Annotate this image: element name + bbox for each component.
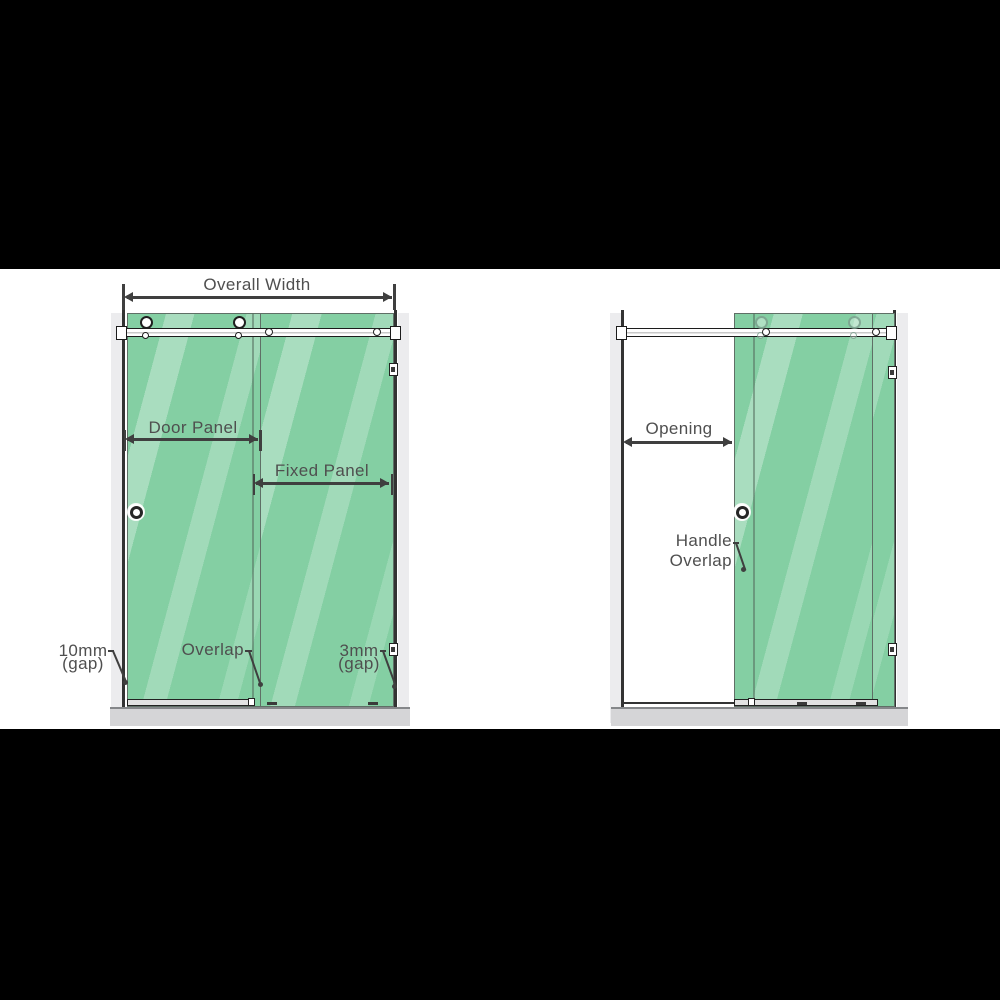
wall-bracket-upper — [888, 366, 897, 379]
handle-overlap-label-line1: Handle — [646, 534, 732, 548]
open-door-diagram: Opening Handle Overlap — [0, 269, 1000, 729]
arrow-head-right-icon — [723, 437, 732, 447]
arrow-head-left-icon — [623, 437, 632, 447]
fixed-panel-seal-left — [797, 702, 807, 705]
fixed-panel-clamp-left — [762, 328, 770, 336]
left-wall-shadow — [610, 313, 621, 723]
product-diagram-page: { "image": { "description": "Sliding sho… — [0, 0, 1000, 1000]
track-wall-cap-left — [616, 326, 627, 340]
bottom-letterbox-bar — [0, 729, 1000, 1000]
fixed-panel-edge-line — [753, 313, 755, 707]
door-roller-right — [848, 316, 861, 329]
shower-tray — [611, 707, 908, 726]
bottom-threshold-line — [623, 702, 734, 704]
diagram-stage: Overall Width Door Panel Fixed Panel Ove… — [0, 269, 1000, 729]
door-handle-knob — [734, 504, 750, 520]
bracket-bolt — [890, 370, 894, 375]
track-wall-cap-right — [886, 326, 897, 340]
bottom-guide-block — [748, 698, 755, 706]
left-wall-profile — [621, 310, 624, 707]
handle-overlap-label-line2: Overlap — [646, 554, 732, 568]
opening-label: Opening — [629, 422, 729, 436]
right-wall-shadow — [897, 313, 908, 723]
wall-bracket-lower — [888, 643, 897, 656]
fixed-panel-clamp-right — [872, 328, 880, 336]
knob-ring — [736, 506, 749, 519]
top-letterbox-bar — [0, 0, 1000, 269]
opening-arrow-line — [626, 441, 732, 444]
bracket-bolt — [890, 647, 894, 652]
roller-bolt-right — [850, 332, 857, 339]
fixed-panel-seal-right — [856, 702, 866, 705]
handle-overlap-leader-dot — [741, 567, 746, 572]
